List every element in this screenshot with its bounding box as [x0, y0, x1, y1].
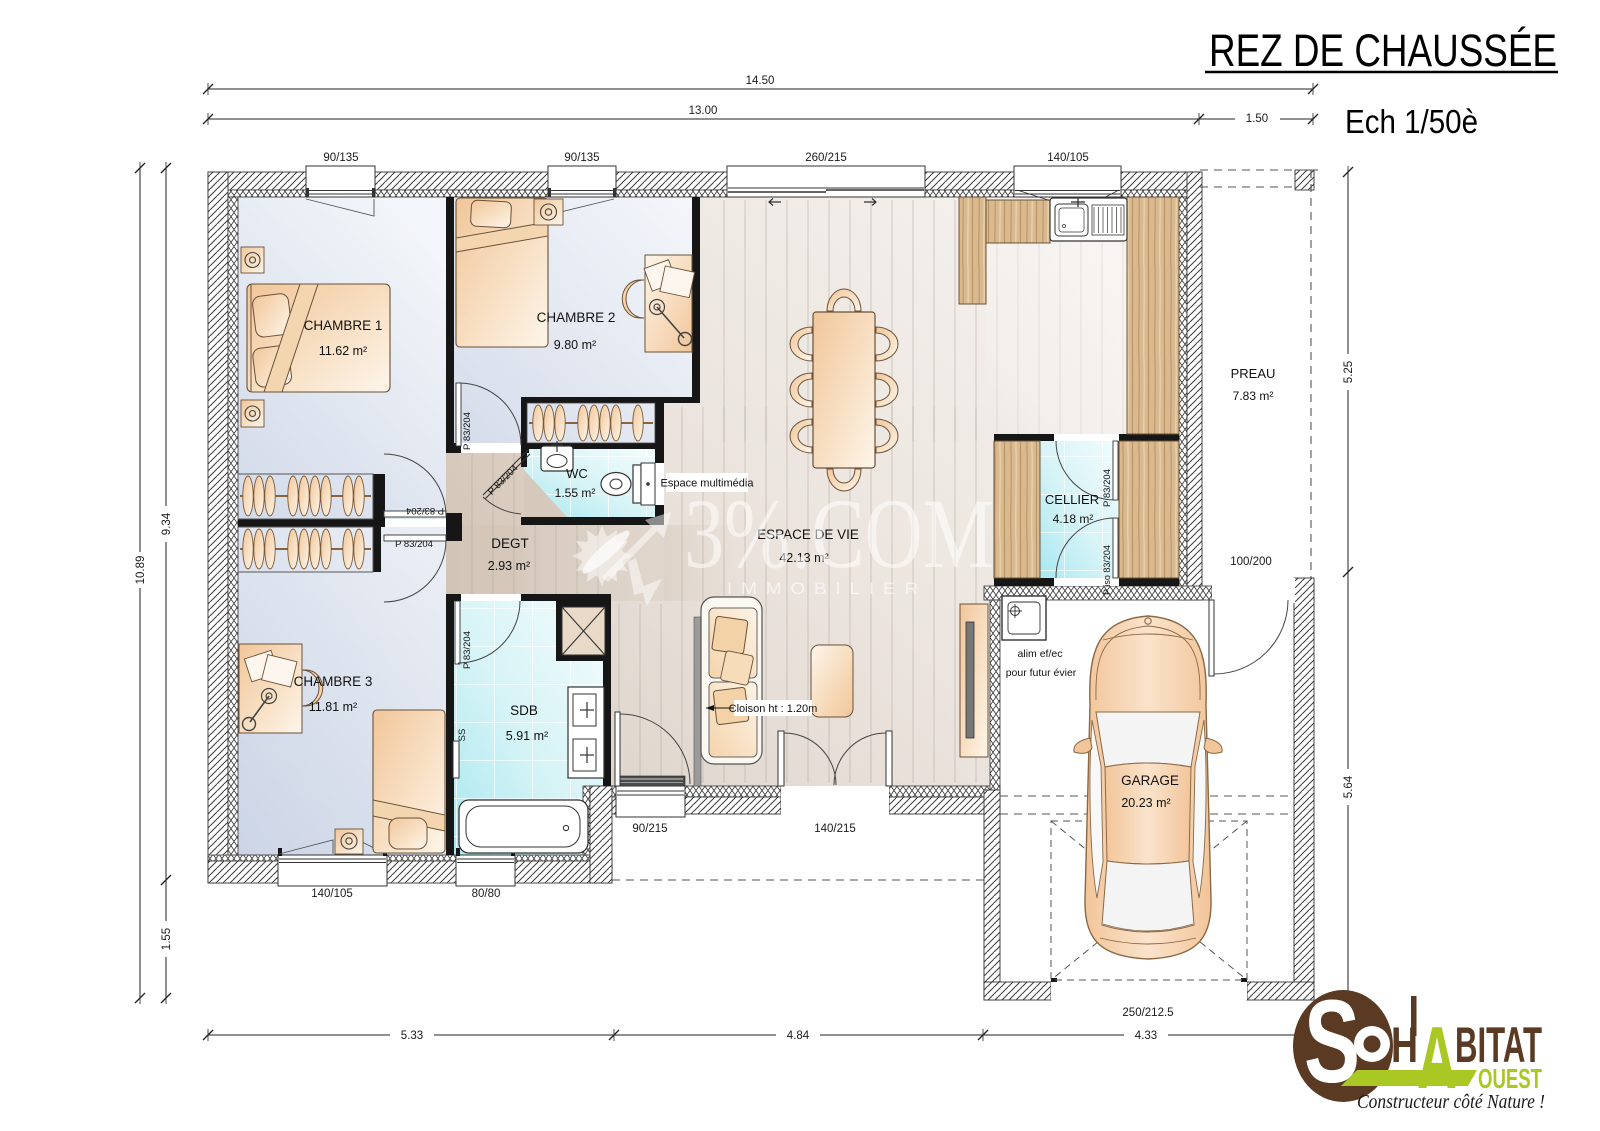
svg-text:4.18 m²: 4.18 m²	[1053, 512, 1094, 526]
svg-text:GARAGE: GARAGE	[1121, 773, 1179, 788]
svg-text:P iso 83/204: P iso 83/204	[1102, 545, 1112, 595]
svg-text:10.89: 10.89	[135, 556, 147, 585]
svg-text:REZ DE CHAUSSÉE: REZ DE CHAUSSÉE	[1209, 25, 1557, 76]
svg-text:3%.COM: 3%.COM	[684, 478, 994, 589]
svg-text:CHAMBRE 1: CHAMBRE 1	[304, 318, 383, 333]
svg-text:DEGT: DEGT	[491, 536, 529, 551]
svg-text:P 83/204: P 83/204	[462, 412, 473, 450]
svg-text:1.55 m²: 1.55 m²	[555, 486, 596, 500]
svg-text:260/215: 260/215	[805, 152, 847, 164]
svg-text:H: H	[1391, 1017, 1418, 1073]
svg-text:SDB: SDB	[510, 703, 538, 718]
svg-text:5.25: 5.25	[1343, 361, 1355, 383]
svg-text:WC: WC	[566, 466, 588, 481]
svg-text:90/135: 90/135	[323, 152, 358, 164]
svg-text:4.84: 4.84	[787, 1030, 810, 1042]
svg-text:PREAU: PREAU	[1231, 366, 1276, 381]
svg-text:4.33: 4.33	[1135, 1030, 1157, 1042]
svg-text:100/200: 100/200	[1230, 556, 1272, 568]
svg-text:OUEST: OUEST	[1478, 1063, 1542, 1094]
svg-text:7.83 m²: 7.83 m²	[1233, 389, 1274, 403]
svg-text:11.81 m²: 11.81 m²	[309, 700, 357, 714]
svg-text:13.00: 13.00	[689, 105, 718, 117]
svg-text:P 83/204: P 83/204	[1102, 469, 1113, 507]
svg-text:IMMOBILIER: IMMOBILIER	[727, 579, 927, 598]
svg-text:2.93 m²: 2.93 m²	[488, 559, 530, 573]
svg-text:CELLIER: CELLIER	[1045, 492, 1099, 507]
svg-text:1.50: 1.50	[1246, 113, 1268, 125]
svg-text:5.33: 5.33	[401, 1030, 423, 1042]
svg-text:1.55: 1.55	[161, 928, 173, 950]
svg-text:90/135: 90/135	[564, 152, 599, 164]
svg-text:140/105: 140/105	[311, 888, 353, 900]
svg-text:CHAMBRE 3: CHAMBRE 3	[294, 674, 373, 689]
svg-text:Ech 1/50è: Ech 1/50è	[1345, 103, 1478, 140]
svg-text:P 83/204: P 83/204	[406, 505, 444, 516]
svg-text:pour futur évier: pour futur évier	[1006, 667, 1077, 679]
svg-text:5.64: 5.64	[1343, 775, 1355, 798]
svg-text:Constructeur côté Nature !: Constructeur côté Nature !	[1357, 1091, 1545, 1113]
svg-text:Cloison ht : 1.20m: Cloison ht : 1.20m	[729, 703, 818, 715]
svg-text:140/215: 140/215	[814, 823, 856, 835]
svg-text:250/212.5: 250/212.5	[1122, 1007, 1173, 1019]
svg-text:11.62 m²: 11.62 m²	[319, 344, 367, 358]
svg-text:P 83/204: P 83/204	[395, 539, 433, 550]
svg-text:S: S	[1304, 976, 1360, 1108]
svg-text:alim ef/ec: alim ef/ec	[1018, 648, 1063, 660]
svg-text:20.23 m²: 20.23 m²	[1121, 796, 1170, 810]
svg-text:80/80: 80/80	[472, 888, 501, 900]
svg-text:14.50: 14.50	[746, 75, 775, 87]
svg-text:P 83/204: P 83/204	[462, 631, 473, 669]
svg-text:9.80 m²: 9.80 m²	[554, 338, 596, 352]
svg-text:140/105: 140/105	[1047, 152, 1089, 164]
svg-text:SS: SS	[457, 729, 468, 742]
svg-text:CHAMBRE 2: CHAMBRE 2	[537, 310, 616, 325]
svg-text:5.91 m²: 5.91 m²	[506, 729, 548, 743]
svg-text:9.34: 9.34	[161, 512, 173, 535]
svg-text:90/215: 90/215	[632, 823, 667, 835]
